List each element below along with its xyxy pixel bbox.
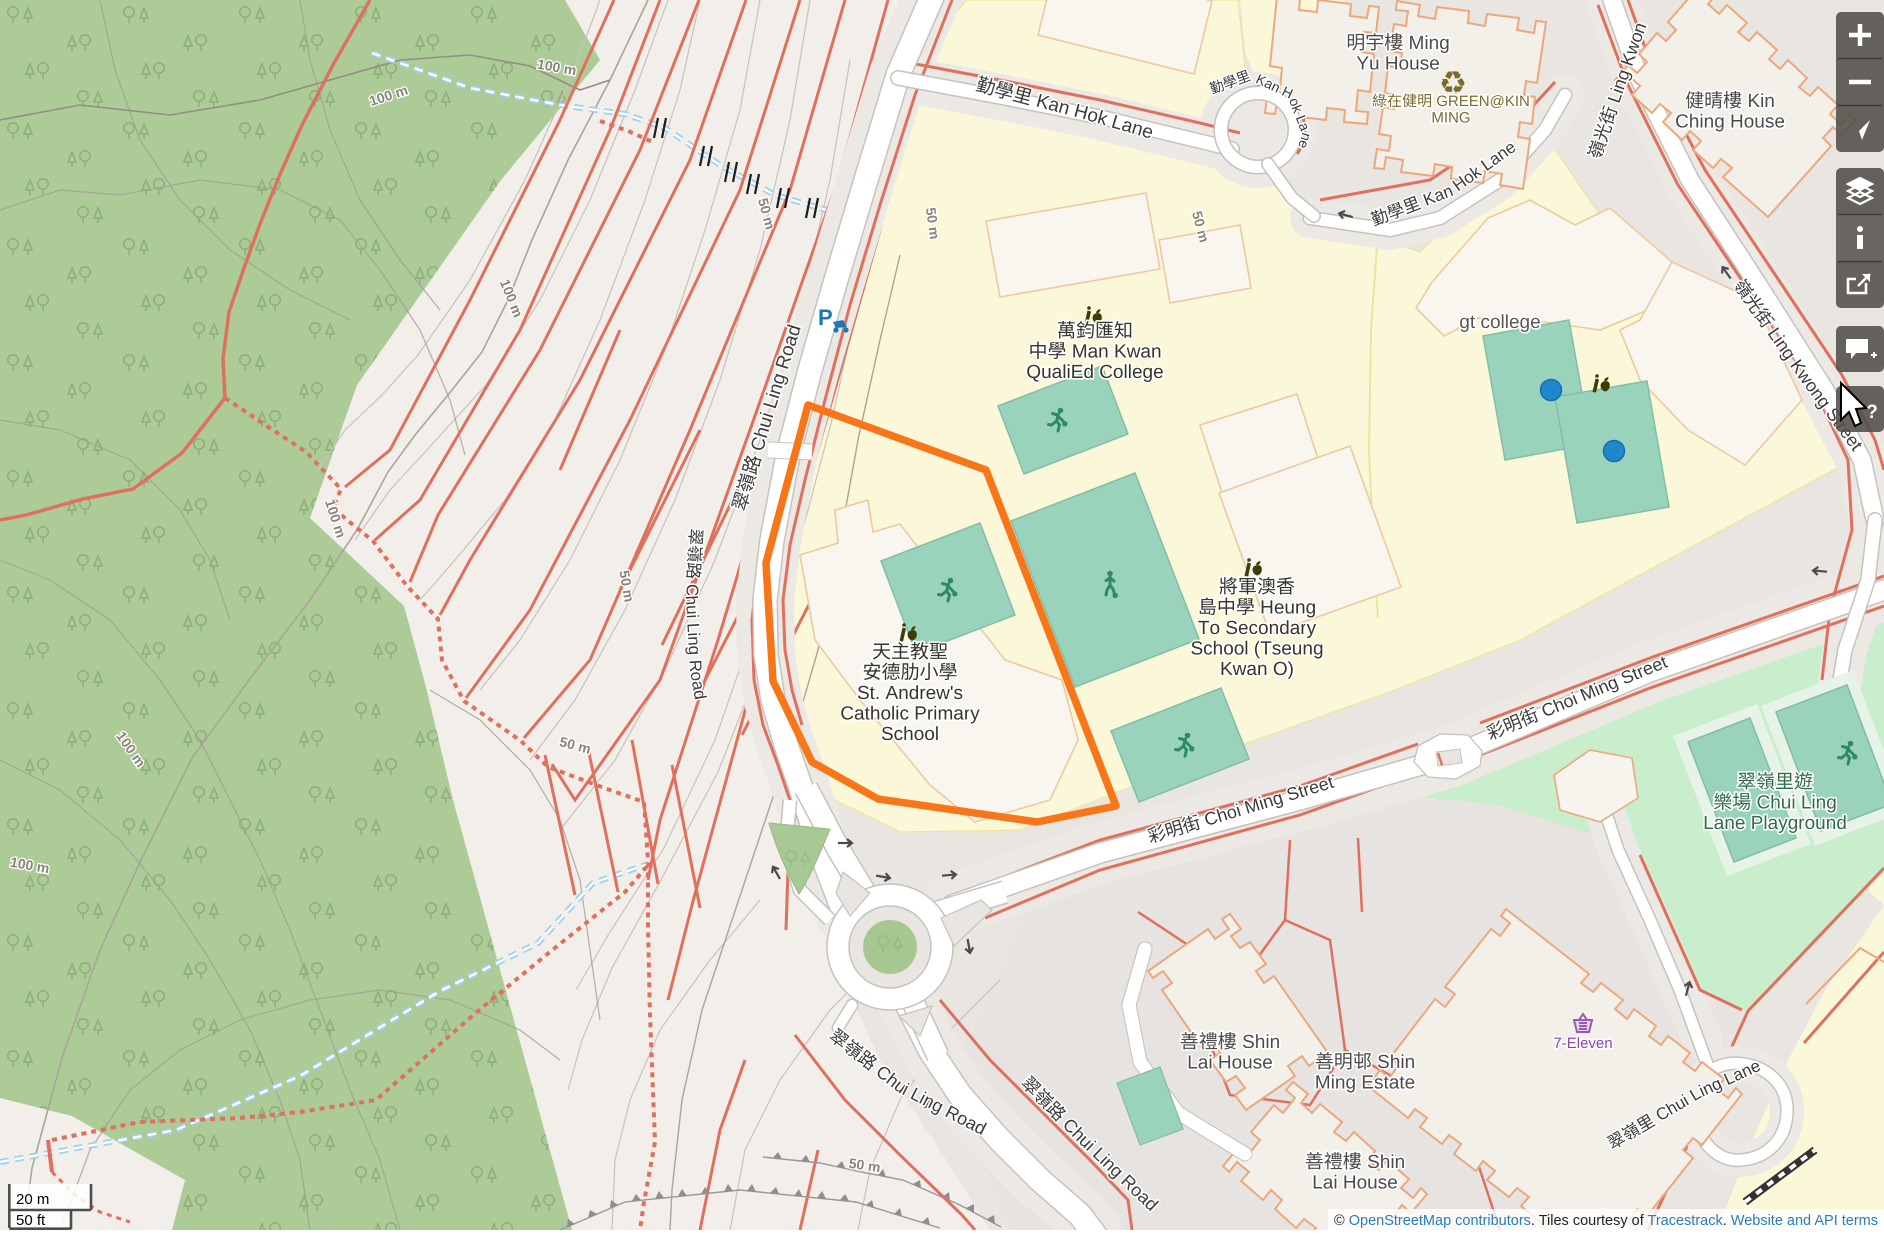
svg-text:20 m: 20 m <box>16 1191 49 1208</box>
svg-text:© OpenStreetMap contributors.: © OpenStreetMap contributors. Tiles cour… <box>1334 1213 1878 1229</box>
svg-text:?: ? <box>1866 402 1878 423</box>
svg-text:50 ft: 50 ft <box>16 1212 46 1229</box>
svg-text:P: P <box>818 305 833 330</box>
